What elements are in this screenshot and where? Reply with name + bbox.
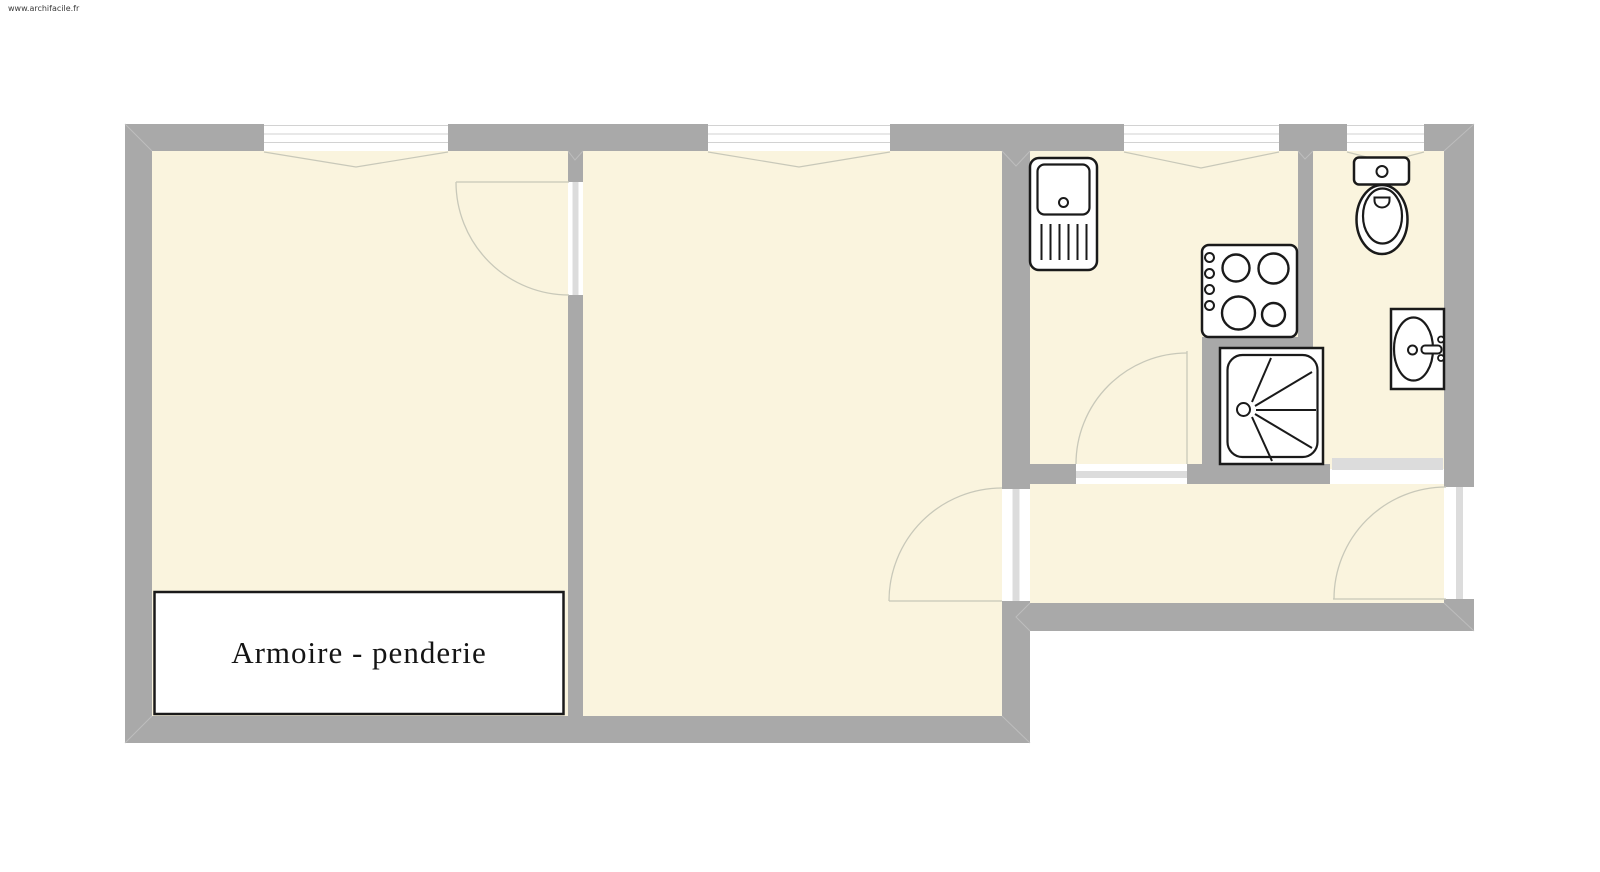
doorway-room1-room2 [568, 182, 583, 295]
wall-right [1444, 124, 1474, 487]
doorway-room2-hallway [1002, 489, 1030, 601]
wall-top [1279, 124, 1347, 151]
wall-hallway-bottom [1030, 603, 1474, 631]
wall-top [448, 124, 708, 151]
toilet-icon [1354, 158, 1409, 255]
wall-room1-room2 [568, 295, 583, 716]
doorway-entrance [1444, 487, 1474, 599]
wall-kitchen-bathroom [1298, 151, 1313, 352]
window-bathroom [1347, 124, 1424, 151]
doorway-kitchen-hallway [1076, 464, 1187, 484]
window-kitchen [1124, 124, 1279, 151]
hallway-floor [1030, 484, 1444, 603]
wall-room2-kitchen [1002, 151, 1030, 489]
stove-icon [1202, 245, 1297, 337]
window-room1 [264, 124, 448, 151]
kitchen-sink-icon [1030, 158, 1097, 270]
room-2-floor [583, 151, 1002, 716]
doorway-bathroom-sliding [1330, 458, 1444, 484]
bathroom-sink-icon [1391, 309, 1444, 389]
window-room2 [708, 124, 890, 151]
sliding-door-leaf [1332, 458, 1443, 470]
wall-room1-room2 [568, 151, 583, 182]
closet-box [155, 592, 564, 714]
wall-room2-kitchen [1002, 601, 1030, 716]
watermark: www.archifacile.fr [8, 4, 79, 13]
wall-shower-niche-left [1202, 337, 1220, 484]
wall-bottom [125, 716, 1030, 743]
floor-plan-canvas: www.archifacile.fr Armoire - penderie [0, 0, 1600, 872]
floor-plan-drawing [0, 0, 1600, 872]
shower-icon [1220, 348, 1323, 464]
wall-top [890, 124, 1124, 151]
wall-kitchen-bottom [1030, 464, 1076, 484]
wall-left [125, 124, 152, 743]
